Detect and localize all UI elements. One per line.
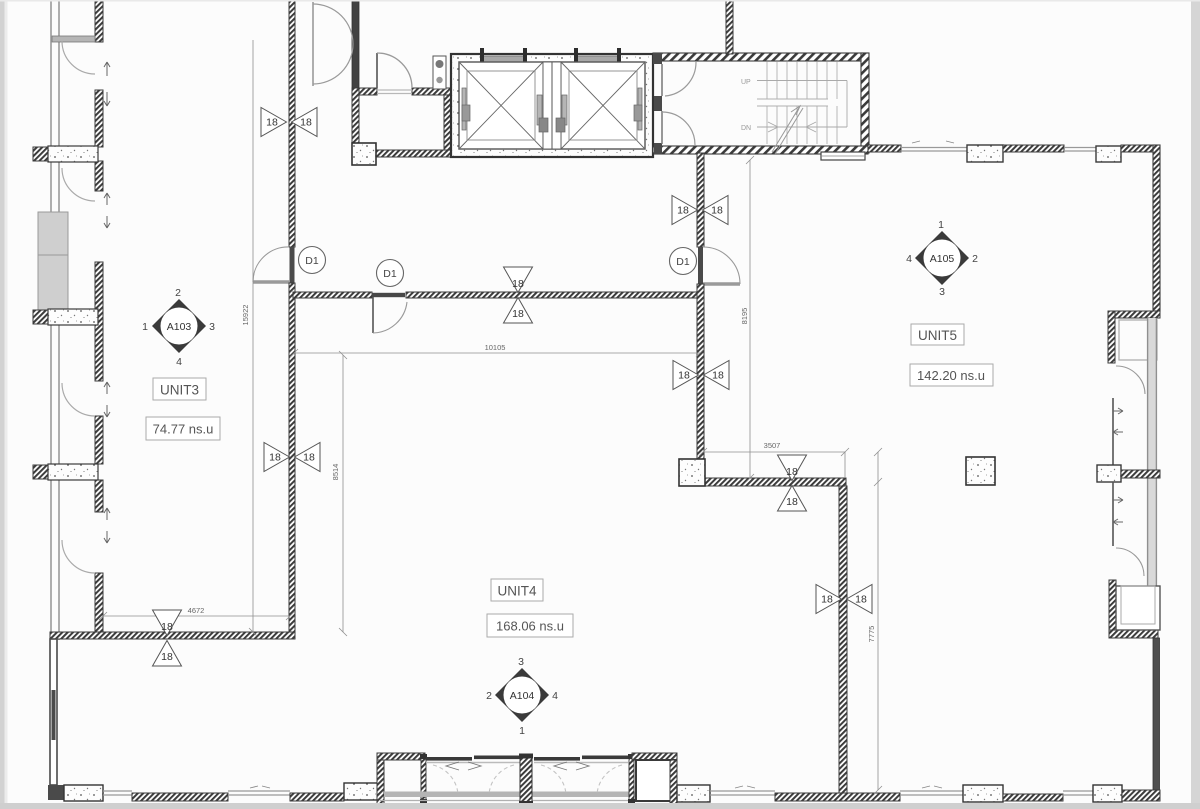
- svg-text:3: 3: [209, 321, 215, 333]
- svg-text:168.06 ns.u: 168.06 ns.u: [496, 619, 564, 634]
- svg-text:4: 4: [176, 356, 182, 368]
- svg-text:4: 4: [552, 690, 558, 702]
- svg-text:15922: 15922: [241, 305, 250, 326]
- svg-text:4672: 4672: [188, 606, 205, 615]
- svg-text:UNIT3: UNIT3: [160, 383, 199, 398]
- svg-text:1: 1: [938, 219, 944, 231]
- svg-text:1: 1: [519, 725, 525, 737]
- svg-text:74.77 ns.u: 74.77 ns.u: [153, 422, 214, 437]
- svg-text:2: 2: [486, 690, 492, 702]
- svg-text:A105: A105: [930, 253, 955, 265]
- svg-text:3: 3: [518, 656, 524, 668]
- svg-text:10105: 10105: [485, 343, 506, 352]
- svg-text:A104: A104: [510, 690, 535, 702]
- svg-text:DN: DN: [741, 125, 751, 132]
- svg-text:A103: A103: [167, 321, 192, 333]
- svg-text:1: 1: [142, 321, 148, 333]
- svg-text:8195: 8195: [740, 308, 749, 325]
- svg-text:4: 4: [906, 253, 912, 265]
- svg-text:8514: 8514: [331, 464, 340, 481]
- svg-text:UNIT4: UNIT4: [497, 584, 536, 599]
- svg-text:2: 2: [175, 287, 181, 299]
- svg-text:7775: 7775: [867, 626, 876, 643]
- svg-text:2: 2: [972, 253, 978, 265]
- svg-text:UNIT5: UNIT5: [918, 328, 957, 343]
- svg-text:3: 3: [939, 286, 945, 298]
- svg-text:3507: 3507: [764, 441, 781, 450]
- svg-text:142.20 ns.u: 142.20 ns.u: [917, 368, 985, 383]
- svg-text:UP: UP: [741, 79, 751, 86]
